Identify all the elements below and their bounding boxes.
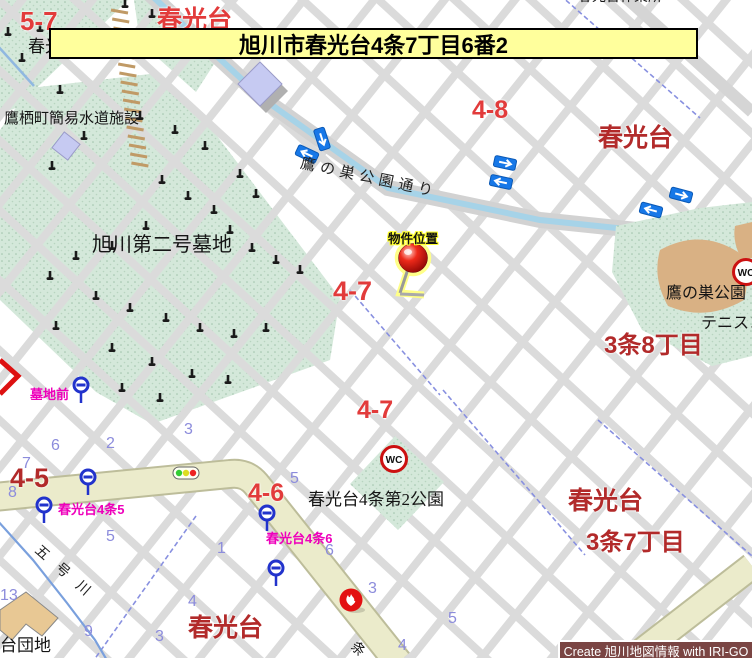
property-marker-label: 物件位置 (388, 228, 438, 247)
wc-icon: WC (382, 447, 407, 472)
map-graphics: WC WC (0, 0, 752, 658)
bus-stop-icon (74, 378, 88, 403)
traffic-light-icon (173, 467, 199, 479)
takanosu-park-area (612, 202, 752, 366)
credit-bar: Create 旭川地図情報 with IRI-GO (558, 640, 752, 658)
bus-stop-icon (269, 561, 283, 586)
svg-text:WC: WC (386, 455, 403, 466)
title-banner: 旭川市春光台4条7丁目6番2 (49, 28, 698, 59)
one-way-sign-icon (639, 202, 663, 218)
map-canvas[interactable]: WC WC 5-7春光台4-84-74-74-64-5春光台3条8丁目春光台3条… (0, 0, 752, 658)
wc-icon: WC (734, 260, 752, 285)
svg-text:WC: WC (738, 268, 752, 279)
cemetery-area (0, 0, 340, 424)
bus-stop-icon (37, 498, 51, 523)
one-way-sign-icon (493, 155, 517, 170)
